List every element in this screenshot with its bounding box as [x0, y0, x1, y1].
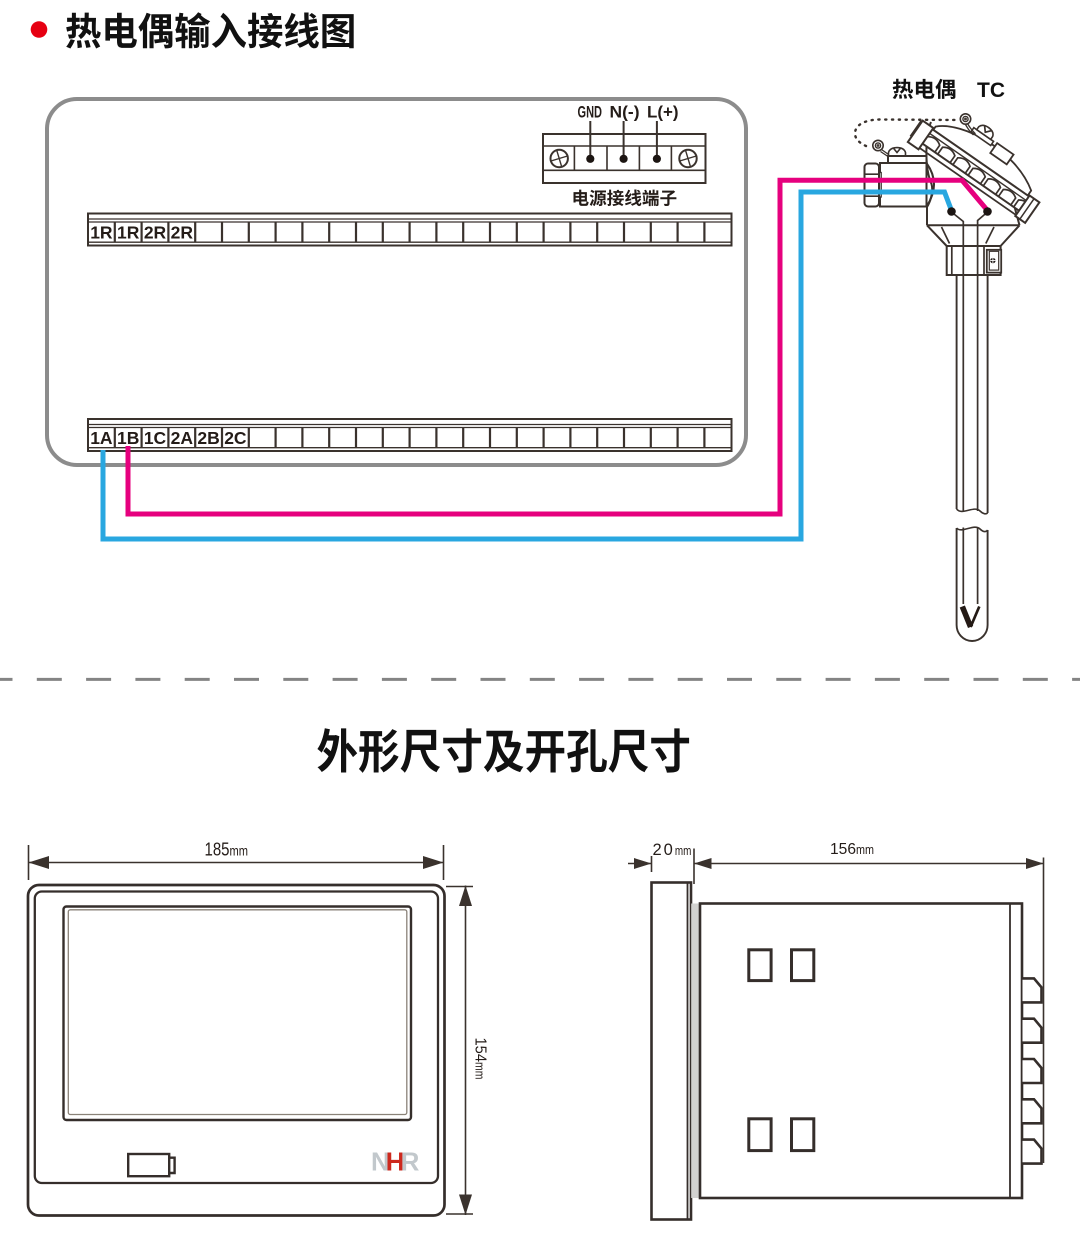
- svg-text:1B: 1B: [117, 428, 139, 448]
- svg-text:2B: 2B: [197, 428, 219, 448]
- svg-text:1R: 1R: [90, 223, 113, 243]
- svg-text:156mm: 156mm: [830, 841, 874, 858]
- svg-text:1A: 1A: [90, 428, 113, 448]
- svg-text:TC: TC: [977, 79, 1005, 102]
- svg-text:1C: 1C: [144, 428, 167, 448]
- svg-text:GND: GND: [578, 103, 603, 122]
- svg-text:154mm: 154mm: [472, 1038, 489, 1080]
- svg-text:2C: 2C: [224, 428, 247, 448]
- svg-text:185mm: 185mm: [205, 840, 249, 860]
- svg-text:1R: 1R: [117, 223, 140, 243]
- svg-text:20mm: 20mm: [653, 841, 692, 859]
- svg-text:N(-): N(-): [610, 103, 640, 122]
- svg-text:NHR: NHR: [371, 1147, 420, 1177]
- svg-text:2R: 2R: [144, 223, 167, 243]
- svg-text:2A: 2A: [171, 428, 194, 448]
- svg-text:L(+): L(+): [647, 103, 679, 122]
- svg-text:2R: 2R: [171, 223, 194, 243]
